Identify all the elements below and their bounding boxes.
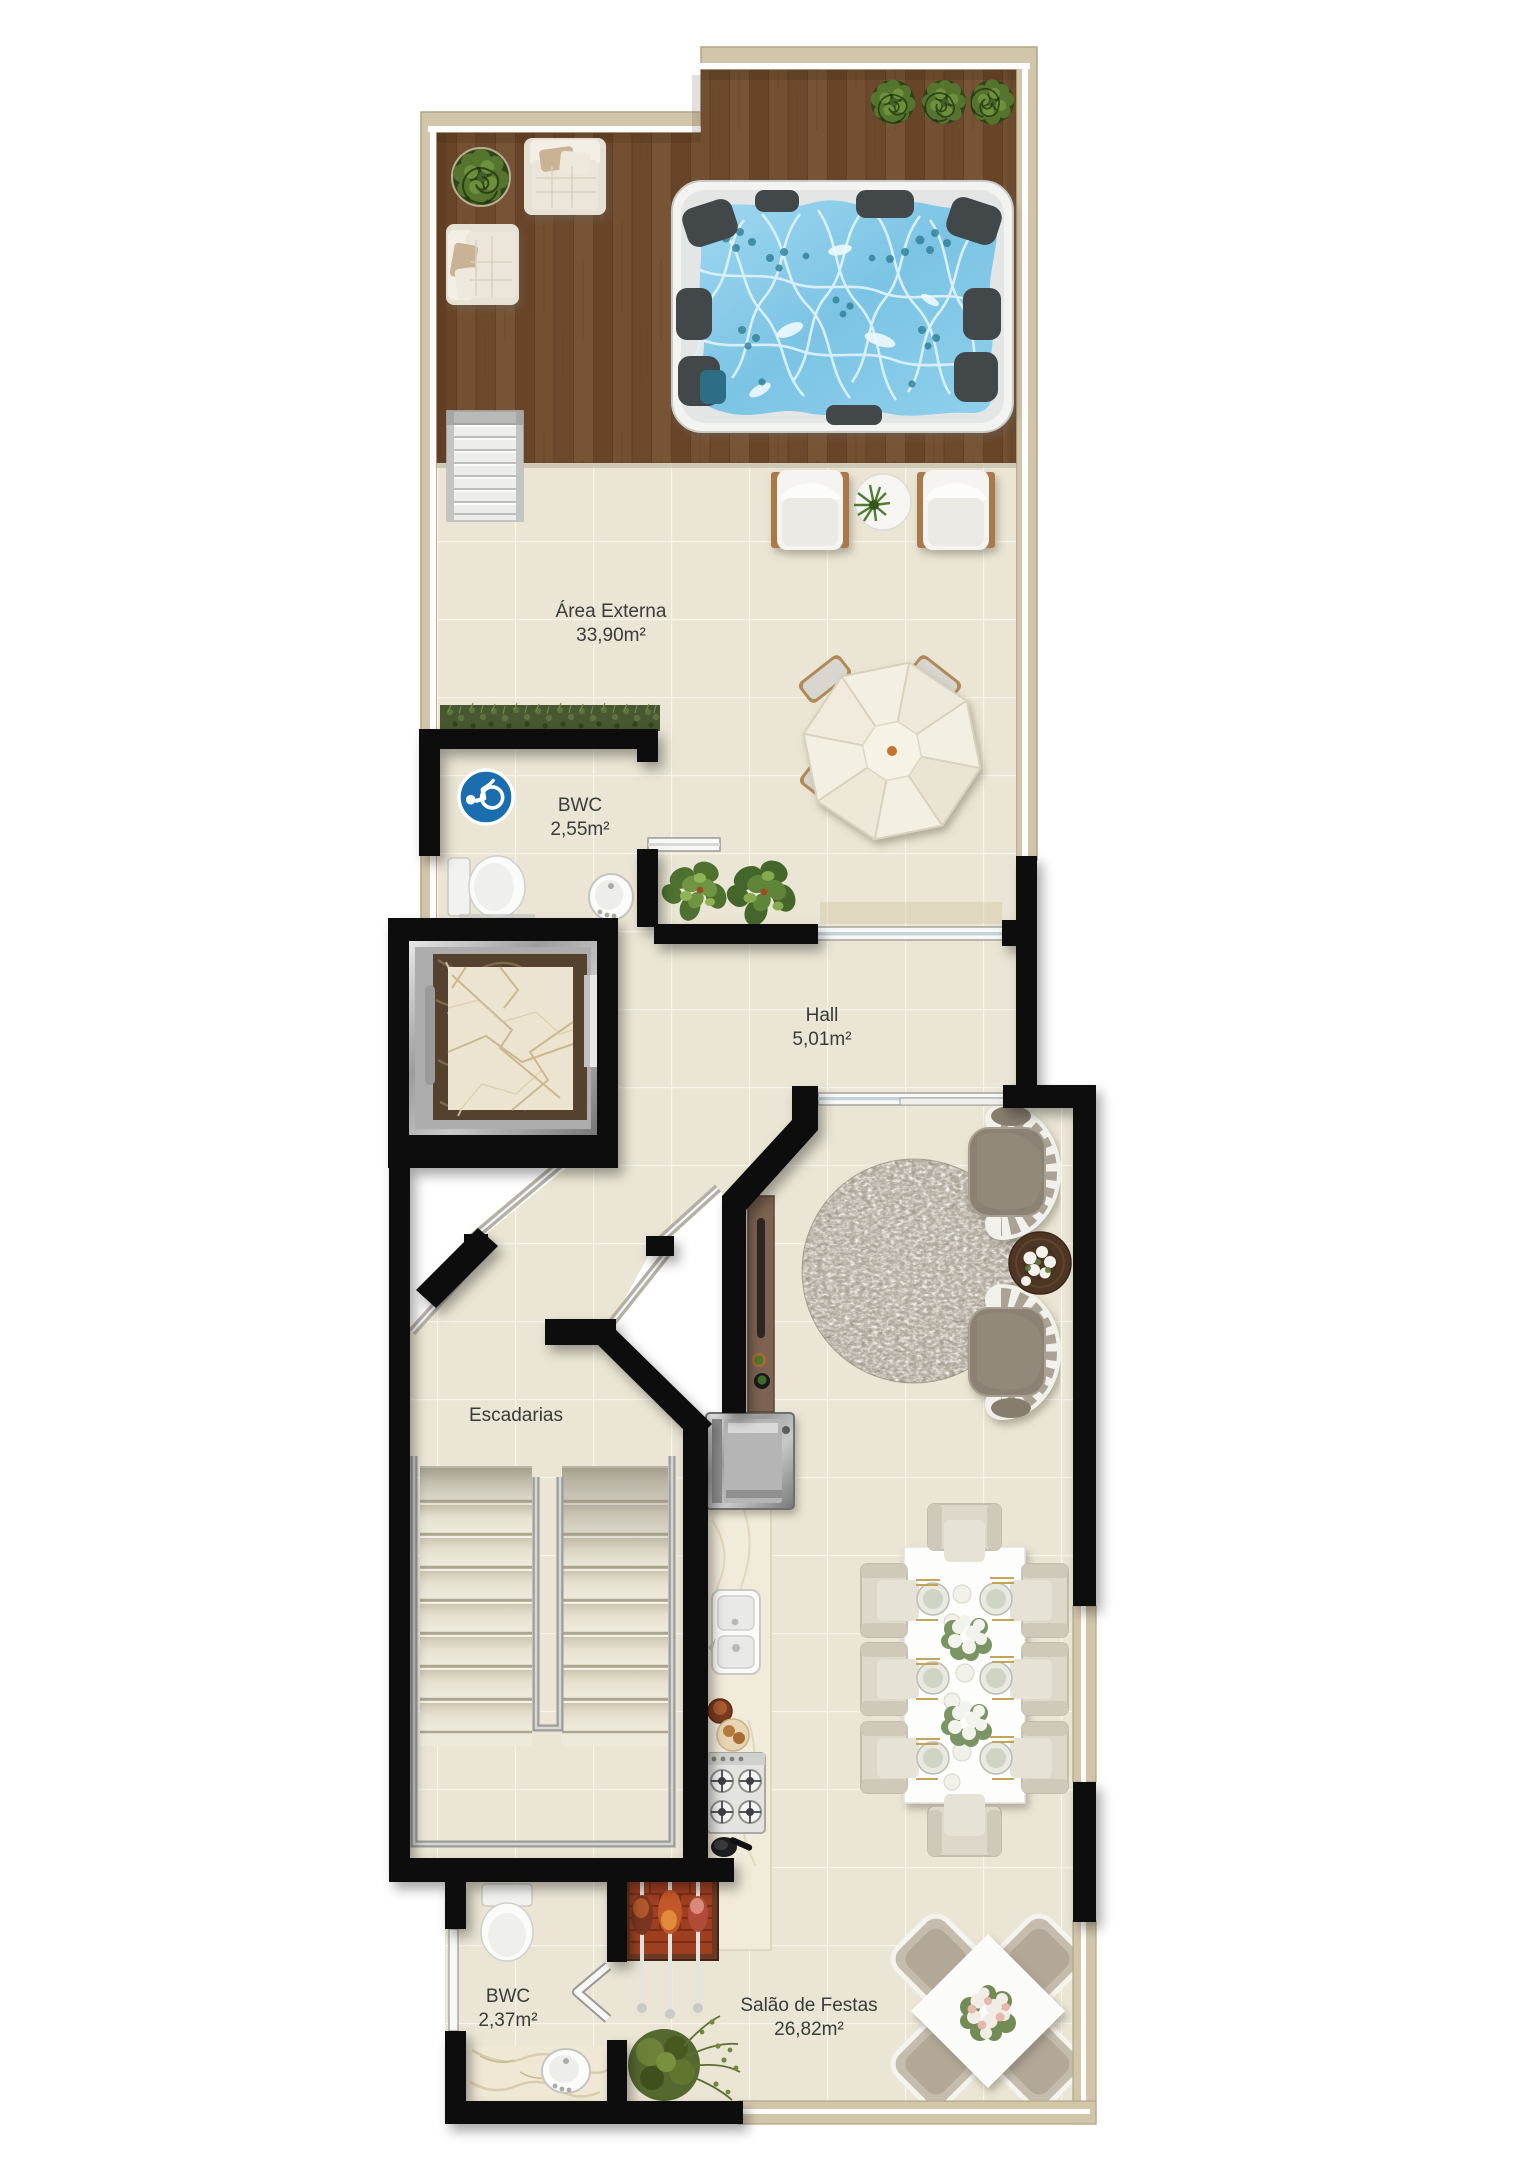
svg-text:BWC: BWC [558,795,602,816]
svg-text:33,90m²: 33,90m² [576,625,646,646]
svg-text:2,37m²: 2,37m² [478,2010,537,2031]
svg-text:Hall: Hall [806,1005,839,1026]
svg-text:2,55m²: 2,55m² [550,819,609,840]
svg-text:26,82m²: 26,82m² [774,2019,844,2040]
svg-text:Salão de Festas: Salão de Festas [740,1995,877,2016]
svg-text:Área Externa: Área Externa [556,601,667,622]
svg-text:BWC: BWC [486,1986,530,2007]
svg-text:5,01m²: 5,01m² [792,1029,851,1050]
svg-text:Escadarias: Escadarias [469,1405,563,1426]
